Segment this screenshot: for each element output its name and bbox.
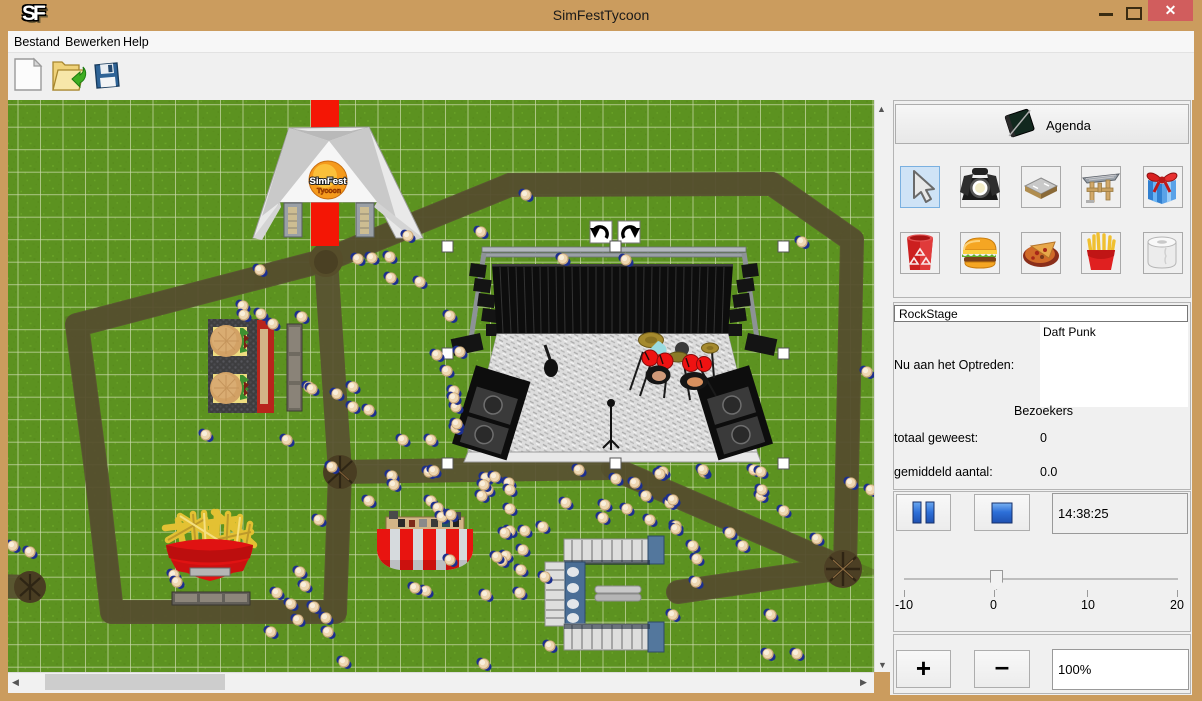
svg-text:Tycoon: Tycoon (317, 188, 341, 195)
svg-text:SimFest: SimFest (310, 176, 348, 187)
